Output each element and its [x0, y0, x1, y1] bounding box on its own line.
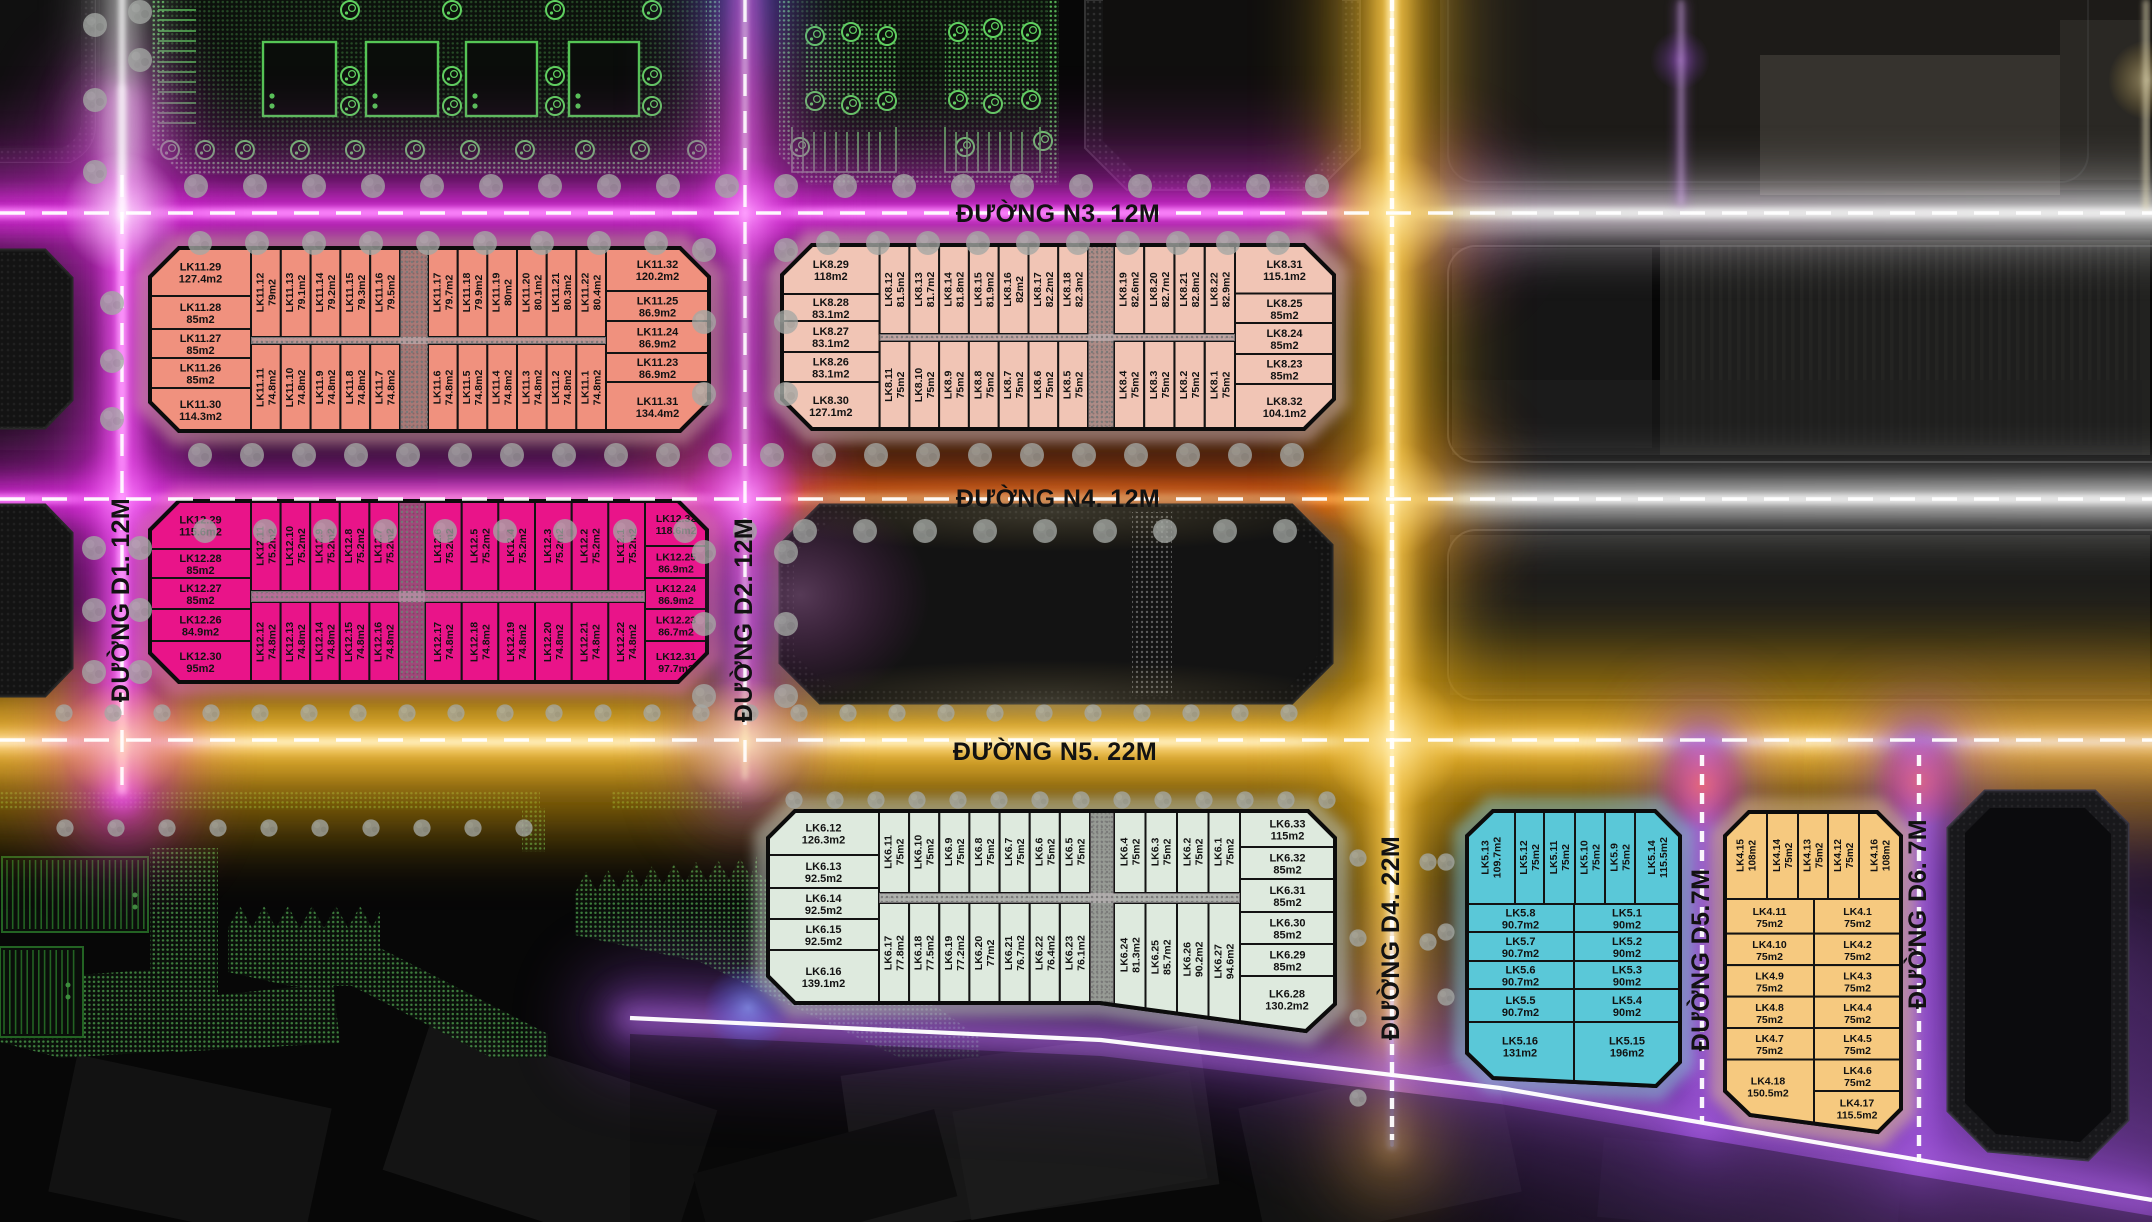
svg-text:LK6.28: LK6.28 [1269, 989, 1305, 1001]
svg-text:LK4.2: LK4.2 [1843, 939, 1872, 951]
svg-text:LK12.2274.8m2: LK12.2274.8m2 [615, 622, 639, 662]
svg-text:90.7m2: 90.7m2 [1502, 1007, 1539, 1019]
svg-text:LK8.675m2: LK8.675m2 [1032, 371, 1056, 400]
svg-text:LK8.275m2: LK8.275m2 [1178, 371, 1202, 400]
svg-text:LK8.24: LK8.24 [1266, 328, 1303, 340]
svg-text:85m2: 85m2 [186, 375, 214, 387]
svg-text:LK11.32: LK11.32 [637, 259, 679, 271]
svg-text:LK11.27: LK11.27 [180, 333, 222, 345]
svg-text:LK8.2282.9m2: LK8.2282.9m2 [1208, 272, 1232, 308]
svg-text:LK8.1075m2: LK8.1075m2 [913, 368, 937, 403]
svg-text:75m2: 75m2 [1756, 918, 1783, 930]
svg-text:LK11.2180.3m2: LK11.2180.3m2 [550, 272, 574, 312]
svg-text:92.5m2: 92.5m2 [805, 873, 842, 885]
svg-text:LK8.1381.7m2: LK8.1381.7m2 [913, 272, 937, 308]
svg-text:LK5.6: LK5.6 [1506, 965, 1536, 977]
svg-text:LK12.2174.8m2: LK12.2174.8m2 [579, 622, 603, 662]
svg-text:150.5m2: 150.5m2 [1747, 1088, 1789, 1100]
svg-text:LK6.2585.7m2: LK6.2585.7m2 [1150, 939, 1174, 975]
svg-text:LK6.14: LK6.14 [805, 893, 842, 905]
svg-text:LK11.1779.7m2: LK11.1779.7m2 [431, 272, 455, 312]
svg-text:LK5.15: LK5.15 [1609, 1036, 1645, 1048]
svg-text:LK6.675m2: LK6.675m2 [1033, 838, 1057, 867]
svg-text:LK6.475m2: LK6.475m2 [1118, 838, 1142, 867]
svg-text:85m2: 85m2 [1273, 962, 1301, 974]
svg-text:90.7m2: 90.7m2 [1502, 948, 1539, 960]
svg-text:120.2m2: 120.2m2 [636, 271, 679, 283]
svg-text:ĐƯỜNG N4. 12M: ĐƯỜNG N4. 12M [956, 483, 1160, 513]
svg-text:LK8.25: LK8.25 [1266, 298, 1302, 310]
svg-text:LK8.30: LK8.30 [813, 395, 849, 407]
svg-text:LK4.18: LK4.18 [1751, 1076, 1786, 1088]
svg-text:LK8.1175m2: LK8.1175m2 [883, 368, 907, 402]
svg-text:115m2: 115m2 [1271, 831, 1305, 843]
svg-text:LK5.5: LK5.5 [1506, 995, 1536, 1007]
svg-text:ĐƯỜNG D4. 22M: ĐƯỜNG D4. 22M [1375, 836, 1405, 1040]
svg-text:83.1m2: 83.1m2 [812, 338, 849, 350]
svg-text:LK11.1879.9m2: LK11.1879.9m2 [461, 272, 485, 312]
svg-text:LK11.24: LK11.24 [637, 327, 679, 339]
svg-text:LK5.1175m2: LK5.1175m2 [1548, 840, 1572, 874]
svg-text:85m2: 85m2 [1270, 340, 1298, 352]
svg-text:LK8.1581.9m2: LK8.1581.9m2 [972, 272, 996, 308]
svg-text:LK6.15: LK6.15 [805, 924, 841, 936]
svg-text:LK8.2182.8m2: LK8.2182.8m2 [1178, 272, 1202, 308]
svg-text:90m2: 90m2 [1613, 948, 1641, 960]
svg-text:LK11.29: LK11.29 [180, 262, 222, 274]
svg-text:84.9m2: 84.9m2 [182, 627, 219, 639]
svg-text:LK11.1074.8m2: LK11.1074.8m2 [284, 367, 308, 407]
svg-text:75m2: 75m2 [1844, 1014, 1871, 1026]
svg-text:75m2: 75m2 [1756, 1014, 1783, 1026]
svg-text:LK6.30: LK6.30 [1269, 918, 1305, 930]
svg-text:LK4.4: LK4.4 [1843, 1002, 1872, 1014]
svg-text:LK11.574.8m2: LK11.574.8m2 [461, 370, 485, 406]
svg-text:LK8.1682m2: LK8.1682m2 [1002, 272, 1026, 307]
svg-text:118m2: 118m2 [814, 271, 848, 283]
svg-text:75m2: 75m2 [1756, 1045, 1783, 1057]
svg-text:LK5.16: LK5.16 [1502, 1036, 1538, 1048]
svg-text:92.5m2: 92.5m2 [805, 905, 842, 917]
svg-text:114.3m2: 114.3m2 [179, 411, 222, 423]
svg-text:LK6.2481.3m2: LK6.2481.3m2 [1118, 937, 1142, 973]
svg-text:LK6.975m2: LK6.975m2 [943, 838, 967, 867]
svg-text:LK11.974.8m2: LK11.974.8m2 [314, 370, 338, 406]
svg-text:LK4.1475m2: LK4.1475m2 [1772, 839, 1795, 872]
svg-text:LK12.1974.8m2: LK12.1974.8m2 [505, 622, 529, 662]
svg-text:LK6.2690.2m2: LK6.2690.2m2 [1181, 941, 1205, 977]
svg-text:LK8.1982.6m2: LK8.1982.6m2 [1118, 272, 1142, 308]
svg-text:LK4.6: LK4.6 [1843, 1065, 1872, 1077]
svg-text:104.1m2: 104.1m2 [1263, 408, 1306, 420]
svg-text:LK6.1777.8m2: LK6.1777.8m2 [883, 935, 907, 971]
svg-text:LK12.1274.8m2: LK12.1274.8m2 [254, 622, 278, 662]
svg-text:ĐƯỜNG D1. 12M: ĐƯỜNG D1. 12M [105, 498, 135, 702]
svg-text:LK8.1481.8m2: LK8.1481.8m2 [943, 272, 967, 308]
svg-text:85m2: 85m2 [186, 314, 214, 326]
svg-text:75m2: 75m2 [1844, 1045, 1871, 1057]
svg-text:115.5m2: 115.5m2 [1837, 1110, 1878, 1122]
svg-text:LK8.775m2: LK8.775m2 [1002, 371, 1026, 400]
svg-text:75m2: 75m2 [1844, 982, 1871, 994]
svg-text:LK8.575m2: LK8.575m2 [1062, 371, 1086, 400]
svg-text:LK6.2376.1m2: LK6.2376.1m2 [1063, 935, 1087, 971]
svg-text:LK6.13: LK6.13 [805, 861, 841, 873]
svg-text:127.4m2: 127.4m2 [179, 274, 222, 286]
svg-text:LK8.175m2: LK8.175m2 [1208, 371, 1232, 400]
svg-text:90m2: 90m2 [1613, 977, 1641, 989]
svg-text:LK6.375m2: LK6.375m2 [1150, 838, 1174, 867]
svg-text:LK12.30: LK12.30 [179, 651, 221, 663]
svg-text:115.1m2: 115.1m2 [1263, 271, 1306, 283]
svg-text:LK8.1782.2m2: LK8.1782.2m2 [1032, 272, 1056, 308]
svg-text:LK11.1679.5m2: LK11.1679.5m2 [374, 272, 398, 312]
svg-text:LK6.12: LK6.12 [805, 823, 841, 835]
svg-text:LK5.4: LK5.4 [1612, 995, 1643, 1007]
svg-text:ĐƯỜNG D6. 7M: ĐƯỜNG D6. 7M [1902, 819, 1932, 1009]
svg-text:LK8.23: LK8.23 [1266, 359, 1302, 371]
svg-text:LK5.3: LK5.3 [1612, 965, 1642, 977]
svg-text:LK11.1579.3m2: LK11.1579.3m2 [344, 272, 368, 312]
svg-text:LK11.25: LK11.25 [637, 296, 679, 308]
svg-text:LK11.874.8m2: LK11.874.8m2 [344, 370, 368, 406]
svg-text:LK4.16108m2: LK4.16108m2 [1870, 839, 1893, 872]
svg-text:LK8.1882.3m2: LK8.1882.3m2 [1062, 272, 1086, 308]
svg-text:85m2: 85m2 [1270, 371, 1298, 383]
svg-text:85m2: 85m2 [186, 345, 214, 357]
svg-text:LK8.1281.5m2: LK8.1281.5m2 [883, 272, 907, 308]
svg-text:ĐƯỜNG D2. 12M: ĐƯỜNG D2. 12M [728, 518, 758, 722]
svg-text:LK12.28: LK12.28 [179, 553, 221, 565]
svg-text:LK12.1874.8m2: LK12.1874.8m2 [469, 622, 493, 662]
svg-text:90.7m2: 90.7m2 [1502, 920, 1539, 932]
svg-text:LK11.1379.1m2: LK11.1379.1m2 [284, 272, 308, 312]
svg-text:LK6.2794.6m2: LK6.2794.6m2 [1213, 943, 1237, 979]
svg-text:LK4.10: LK4.10 [1752, 939, 1787, 951]
svg-text:LK11.174.8m2: LK11.174.8m2 [580, 370, 604, 406]
svg-text:LK8.31: LK8.31 [1266, 259, 1302, 271]
svg-text:LK5.2: LK5.2 [1612, 936, 1642, 948]
svg-text:LK11.1174.8m2: LK11.1174.8m2 [254, 368, 278, 407]
svg-text:LK4.8: LK4.8 [1755, 1002, 1784, 1014]
svg-text:LK6.275m2: LK6.275m2 [1181, 838, 1205, 867]
svg-text:90m2: 90m2 [1613, 1007, 1641, 1019]
svg-text:LK4.1: LK4.1 [1843, 906, 1872, 918]
svg-text:ĐƯỜNG D5.7M: ĐƯỜNG D5.7M [1685, 869, 1715, 1052]
svg-text:131m2: 131m2 [1503, 1048, 1537, 1060]
svg-text:86.9m2: 86.9m2 [639, 369, 676, 381]
svg-text:134.4m2: 134.4m2 [636, 408, 679, 420]
svg-text:LK11.2280.4m2: LK11.2280.4m2 [580, 272, 604, 312]
svg-text:LK4.17: LK4.17 [1840, 1098, 1875, 1110]
svg-text:95m2: 95m2 [186, 663, 214, 675]
svg-text:85m2: 85m2 [186, 565, 214, 577]
svg-text:LK4.1275m2: LK4.1275m2 [1833, 839, 1856, 872]
svg-text:LK5.1075m2: LK5.1075m2 [1579, 840, 1603, 875]
svg-text:LK12.275.2m2: LK12.275.2m2 [579, 528, 603, 564]
svg-text:LK6.1075m2: LK6.1075m2 [913, 835, 937, 870]
svg-text:75m2: 75m2 [1756, 982, 1783, 994]
svg-text:LK11.774.8m2: LK11.774.8m2 [374, 370, 398, 406]
svg-text:LK11.23: LK11.23 [637, 357, 679, 369]
svg-text:LK5.975m2: LK5.975m2 [1609, 843, 1633, 872]
svg-text:LK8.375m2: LK8.375m2 [1148, 371, 1172, 400]
svg-text:ĐƯỜNG N3. 12M: ĐƯỜNG N3. 12M [956, 198, 1160, 228]
svg-text:LK12.1674.8m2: LK12.1674.8m2 [373, 622, 397, 662]
svg-text:75m2: 75m2 [1756, 951, 1783, 963]
svg-text:LK5.1: LK5.1 [1612, 908, 1642, 920]
svg-text:196m2: 196m2 [1610, 1048, 1644, 1060]
svg-text:86.9m2: 86.9m2 [639, 339, 676, 351]
svg-text:LK11.274.8m2: LK11.274.8m2 [550, 370, 574, 406]
svg-text:LK12.27: LK12.27 [179, 583, 221, 595]
svg-text:LK5.14115.5m2: LK5.14115.5m2 [1646, 837, 1670, 878]
svg-text:LK12.1574.8m2: LK12.1574.8m2 [343, 622, 367, 662]
svg-text:LK8.2082.7m2: LK8.2082.7m2 [1148, 272, 1172, 308]
svg-text:85m2: 85m2 [186, 595, 214, 607]
svg-text:LK6.2077m2: LK6.2077m2 [973, 936, 997, 971]
svg-text:LK11.28: LK11.28 [180, 302, 222, 314]
svg-text:75m2: 75m2 [1844, 1077, 1871, 1089]
svg-text:LK4.1375m2: LK4.1375m2 [1803, 839, 1826, 872]
svg-text:85m2: 85m2 [1273, 865, 1301, 877]
svg-text:LK11.30: LK11.30 [180, 399, 222, 411]
svg-text:LK6.2176.7m2: LK6.2176.7m2 [1003, 935, 1027, 971]
svg-text:LK12.2074.8m2: LK12.2074.8m2 [542, 622, 566, 662]
svg-text:83.1m2: 83.1m2 [812, 369, 849, 381]
svg-text:LK4.11: LK4.11 [1753, 906, 1787, 918]
svg-text:85m2: 85m2 [1273, 930, 1301, 942]
svg-text:130.2m2: 130.2m2 [1265, 1001, 1308, 1013]
svg-text:LK5.8: LK5.8 [1506, 908, 1536, 920]
svg-text:LK8.875m2: LK8.875m2 [972, 371, 996, 400]
svg-text:75m2: 75m2 [1844, 951, 1871, 963]
svg-text:85m2: 85m2 [1270, 310, 1298, 322]
svg-text:LK12.1075.2m2: LK12.1075.2m2 [284, 526, 308, 566]
svg-text:86.9m2: 86.9m2 [639, 308, 676, 320]
svg-text:LK11.474.8m2: LK11.474.8m2 [491, 370, 515, 406]
svg-text:83.1m2: 83.1m2 [812, 309, 849, 321]
svg-text:85m2: 85m2 [1273, 897, 1301, 909]
svg-text:LK6.175m2: LK6.175m2 [1213, 838, 1237, 867]
svg-text:126.3m2: 126.3m2 [802, 835, 845, 847]
svg-text:LK11.26: LK11.26 [180, 363, 222, 375]
svg-text:LK6.33: LK6.33 [1269, 819, 1305, 831]
svg-text:LK11.674.8m2: LK11.674.8m2 [431, 370, 455, 406]
svg-text:LK4.5: LK4.5 [1843, 1033, 1872, 1045]
svg-text:LK12.1774.8m2: LK12.1774.8m2 [432, 622, 456, 662]
svg-text:LK12.26: LK12.26 [179, 615, 221, 627]
svg-text:LK8.32: LK8.32 [1266, 396, 1302, 408]
svg-text:LK6.775m2: LK6.775m2 [1003, 838, 1027, 867]
svg-text:LK6.31: LK6.31 [1269, 885, 1305, 897]
svg-text:LK5.7: LK5.7 [1506, 936, 1536, 948]
svg-text:92.5m2: 92.5m2 [805, 936, 842, 948]
svg-text:LK12.1374.8m2: LK12.1374.8m2 [284, 622, 308, 662]
svg-text:LK12.1474.8m2: LK12.1474.8m2 [314, 622, 338, 662]
svg-text:139.1m2: 139.1m2 [802, 978, 845, 990]
svg-text:90m2: 90m2 [1613, 920, 1641, 932]
svg-text:LK11.1479.2m2: LK11.1479.2m2 [314, 272, 338, 312]
svg-text:LK8.27: LK8.27 [813, 326, 849, 338]
svg-text:LK12.875.2m2: LK12.875.2m2 [343, 528, 367, 564]
svg-text:LK4.7: LK4.7 [1755, 1033, 1784, 1045]
svg-text:LK8.29: LK8.29 [813, 259, 849, 271]
svg-text:LK8.26: LK8.26 [813, 357, 849, 369]
svg-text:LK6.875m2: LK6.875m2 [973, 838, 997, 867]
svg-text:LK8.28: LK8.28 [813, 297, 849, 309]
svg-text:LK8.975m2: LK8.975m2 [943, 371, 967, 400]
svg-text:LK8.475m2: LK8.475m2 [1118, 371, 1142, 400]
svg-text:LK5.13109.7m2: LK5.13109.7m2 [1480, 837, 1504, 879]
svg-text:LK4.9: LK4.9 [1755, 970, 1784, 982]
svg-text:127.1m2: 127.1m2 [809, 407, 852, 419]
svg-text:LK6.575m2: LK6.575m2 [1063, 838, 1087, 867]
svg-text:LK11.31: LK11.31 [637, 396, 679, 408]
svg-text:75m2: 75m2 [1844, 918, 1871, 930]
svg-text:LK6.29: LK6.29 [1269, 950, 1305, 962]
svg-text:LK6.1877.5m2: LK6.1877.5m2 [913, 935, 937, 971]
svg-text:LK6.16: LK6.16 [805, 966, 841, 978]
svg-text:90.7m2: 90.7m2 [1502, 977, 1539, 989]
svg-text:LK11.374.8m2: LK11.374.8m2 [520, 370, 544, 406]
svg-text:LK12.575.2m2: LK12.575.2m2 [469, 528, 493, 564]
svg-text:ĐƯỜNG N5. 22M: ĐƯỜNG N5. 22M [953, 736, 1157, 766]
svg-text:LK4.3: LK4.3 [1843, 970, 1872, 982]
svg-text:LK11.2080.1m2: LK11.2080.1m2 [520, 272, 544, 312]
svg-text:LK6.2276.4m2: LK6.2276.4m2 [1033, 935, 1057, 971]
svg-text:LK4.15108m2: LK4.15108m2 [1736, 839, 1759, 872]
svg-text:LK6.32: LK6.32 [1269, 853, 1305, 865]
svg-text:LK5.1275m2: LK5.1275m2 [1518, 840, 1542, 875]
svg-text:LK6.1977.2m2: LK6.1977.2m2 [943, 935, 967, 971]
svg-text:LK6.1175m2: LK6.1175m2 [883, 835, 907, 869]
